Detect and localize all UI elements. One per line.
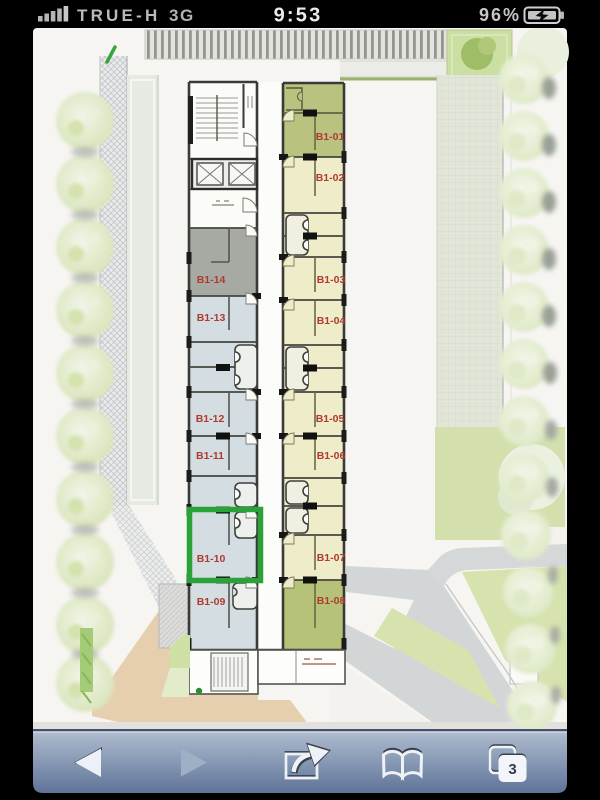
svg-text:B1-05: B1-05 [316, 413, 345, 425]
svg-text:B1-11: B1-11 [196, 450, 224, 462]
svg-text:B1-09: B1-09 [197, 596, 226, 608]
svg-text:B1-03: B1-03 [317, 274, 346, 286]
svg-text:TRUE-H: TRUE-H [77, 6, 160, 25]
svg-text:B1-08: B1-08 [317, 595, 346, 607]
svg-text:3: 3 [508, 761, 516, 778]
svg-text:9:53: 9:53 [274, 5, 323, 27]
svg-text:B1-01: B1-01 [316, 131, 345, 143]
svg-text:96%: 96% [479, 5, 521, 25]
svg-text:B1-12: B1-12 [196, 413, 225, 425]
svg-text:B1-02: B1-02 [316, 172, 345, 184]
svg-text:B1-07: B1-07 [317, 552, 346, 564]
svg-text:B1-06: B1-06 [317, 450, 346, 462]
svg-text:B1-13: B1-13 [197, 312, 226, 324]
svg-text:B1-04: B1-04 [317, 315, 346, 327]
svg-text:B1-14: B1-14 [197, 274, 226, 286]
svg-text:B1-10: B1-10 [197, 553, 226, 565]
svg-text:3G: 3G [169, 6, 195, 25]
